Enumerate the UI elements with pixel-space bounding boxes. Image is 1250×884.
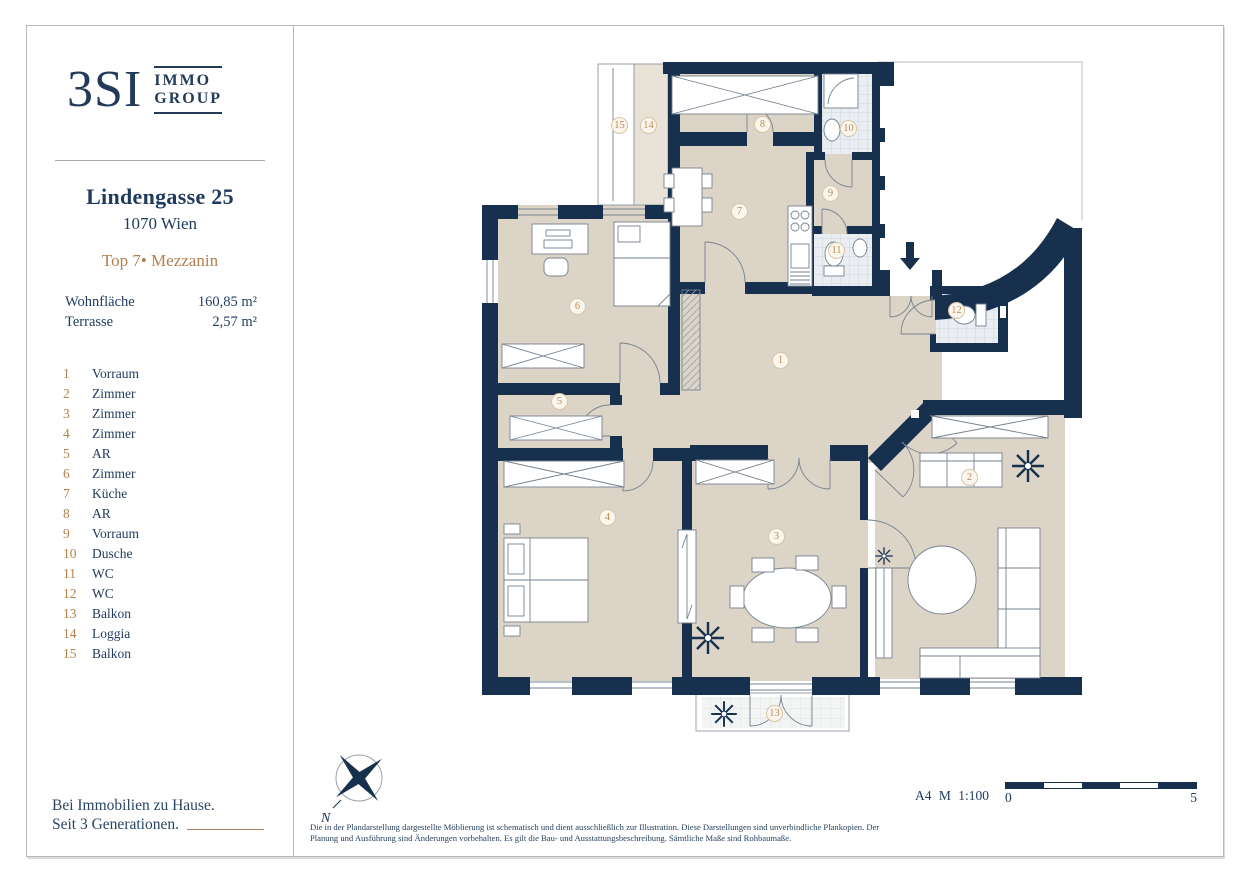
sidebar: 3SI IMMO GROUP Lindengasse 25 1070 Wien …	[27, 26, 294, 856]
area-table: Wohnfläche 160,85 m² Terrasse 2,57 m²	[65, 292, 257, 332]
room-label-6: 6	[569, 298, 586, 315]
page-frame: 3SI IMMO GROUP Lindengasse 25 1070 Wien …	[26, 25, 1224, 857]
room-label-3: 3	[768, 528, 785, 545]
room-label-8: 8	[754, 116, 771, 133]
scale-bar: 0 5	[1005, 782, 1197, 806]
legend-item: 13Balkon	[63, 604, 139, 624]
logo-3si-text: 3SI	[67, 64, 142, 116]
scale-bar-graphic	[1005, 782, 1197, 789]
area-value: 2,57 m²	[212, 312, 257, 332]
shaft-window	[1000, 306, 1006, 318]
legend-item: 15Balkon	[63, 644, 139, 664]
logo-immo-line: IMMO	[154, 72, 222, 90]
room-label-11: 11	[828, 242, 845, 259]
disclaimer: Die in der Plandarstellung dargestellte …	[310, 822, 890, 844]
area-label: Wohnfläche	[65, 292, 135, 312]
entrance-arrow	[900, 242, 920, 270]
legend-item: 6Zimmer	[63, 464, 139, 484]
legend-item: 12WC	[63, 584, 139, 604]
legend-item: 14Loggia	[63, 624, 139, 644]
room-label-1: 1	[772, 352, 789, 369]
room-label-10: 10	[840, 120, 857, 137]
logo-group-line: GROUP	[154, 90, 222, 108]
property-unit: Top 7• Mezzanin	[27, 251, 293, 271]
room-label-15: 15	[611, 117, 628, 134]
logo-immo-group: IMMO GROUP	[154, 66, 222, 113]
legend-item: 8AR	[63, 504, 139, 524]
room-label-9: 9	[822, 185, 839, 202]
room-label-7: 7	[731, 203, 748, 220]
scale-start: 0	[1005, 790, 1012, 806]
stairwell-outline	[878, 62, 1082, 220]
area-value: 160,85 m²	[198, 292, 257, 312]
legend-item: 3Zimmer	[63, 404, 139, 424]
floor-plan: 1 2 3 4 5 6 7 8 9 10 11 12 13 14 15	[480, 58, 1105, 733]
room-legend: 1Vorraum 2Zimmer 3Zimmer 4Zimmer 5AR 6Zi…	[63, 364, 139, 664]
room-label-2: 2	[961, 469, 978, 486]
brochure-page: 3SI IMMO GROUP Lindengasse 25 1070 Wien …	[0, 0, 1250, 884]
legend-item: 7Küche	[63, 484, 139, 504]
logo-divider	[55, 160, 265, 161]
legend-item: 9Vorraum	[63, 524, 139, 544]
brand-logo: 3SI IMMO GROUP	[67, 64, 222, 116]
brand-tagline: Bei Immobilien zu Hause. Seit 3 Generati…	[52, 796, 215, 834]
legend-item: 4Zimmer	[63, 424, 139, 444]
scale-bar-labels: 0 5	[1005, 790, 1197, 806]
legend-item: 5AR	[63, 444, 139, 464]
area-label: Terrasse	[65, 312, 113, 332]
scale-note: A4 M 1:100	[915, 788, 989, 804]
legend-item: 11WC	[63, 564, 139, 584]
compass-rose: N	[315, 748, 399, 832]
floor-plan-drawing	[480, 58, 1105, 733]
area-row-terrasse: Terrasse 2,57 m²	[65, 312, 257, 332]
room-label-12: 12	[948, 302, 965, 319]
tagline-line1: Bei Immobilien zu Hause.	[52, 796, 215, 815]
room-floors	[498, 64, 1065, 731]
room-label-14: 14	[640, 117, 657, 134]
legend-item: 2Zimmer	[63, 384, 139, 404]
property-street: Lindengasse 25	[27, 184, 293, 210]
tagline-line2: Seit 3 Generationen.	[52, 815, 215, 834]
legend-item: 1Vorraum	[63, 364, 139, 384]
legend-item: 10Dusche	[63, 544, 139, 564]
room-label-5: 5	[551, 393, 568, 410]
wall-niche	[911, 410, 919, 418]
area-row-wohnflaeche: Wohnfläche 160,85 m²	[65, 292, 257, 312]
scale-end: 5	[1190, 790, 1197, 806]
room-label-13: 13	[766, 705, 783, 722]
property-city: 1070 Wien	[27, 214, 293, 234]
tagline-underline	[187, 829, 264, 830]
room-label-4: 4	[599, 509, 616, 526]
